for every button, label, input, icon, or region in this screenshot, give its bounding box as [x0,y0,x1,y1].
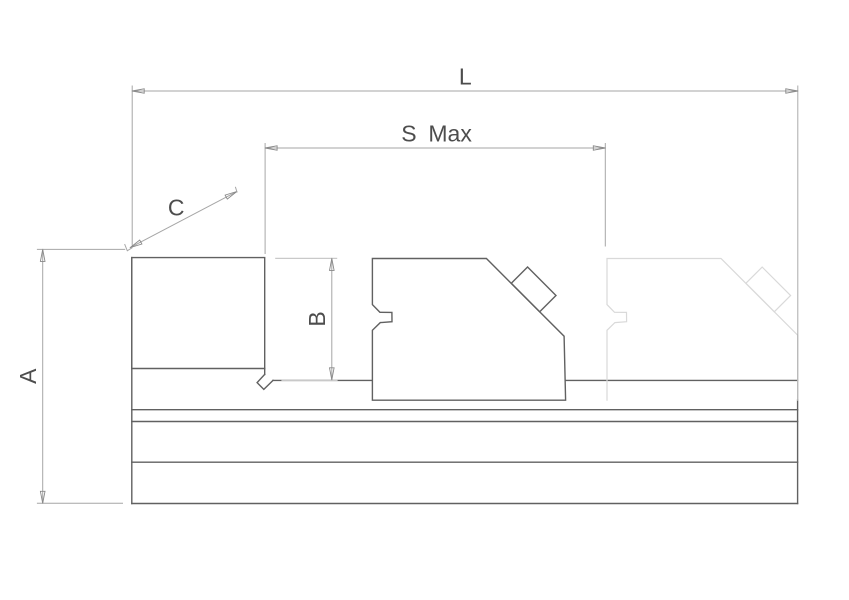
svg-text:S: S [401,121,416,147]
svg-text:Max: Max [428,121,472,147]
svg-text:A: A [15,368,41,384]
svg-text:C: C [168,194,185,220]
svg-text:L: L [459,64,472,90]
svg-text:B: B [304,311,330,326]
